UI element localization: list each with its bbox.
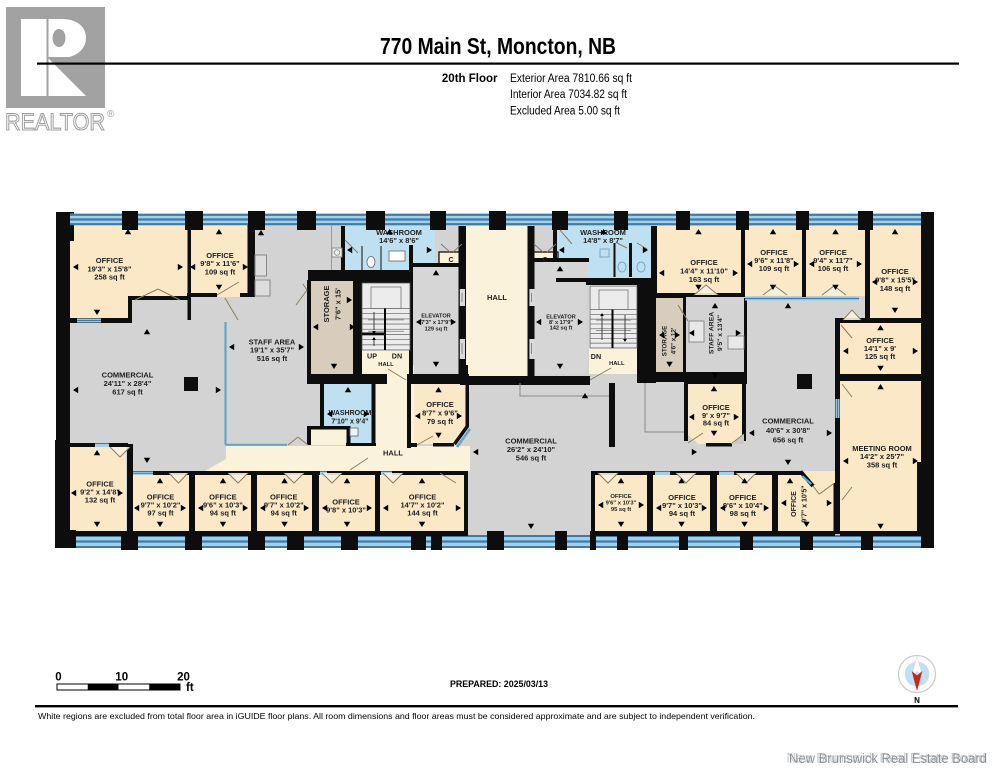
svg-text:UP: UP [367, 352, 377, 361]
svg-text:ft: ft [186, 682, 194, 694]
svg-text:94 sq ft: 94 sq ft [271, 508, 298, 517]
svg-text:®: ® [107, 109, 115, 120]
svg-text:HALL: HALL [383, 449, 403, 458]
svg-text:40'6" x 30'8": 40'6" x 30'8" [766, 426, 810, 435]
svg-text:617 sq ft: 617 sq ft [112, 387, 143, 396]
svg-text:REALTOR: REALTOR [5, 109, 105, 136]
svg-text:HALL: HALL [487, 293, 507, 302]
svg-text:STORAGE: STORAGE [322, 286, 331, 323]
svg-text:4'6" x 12': 4'6" x 12' [671, 327, 678, 354]
svg-text:109 sq ft: 109 sq ft [205, 267, 236, 276]
svg-text:OFFICE: OFFICE [610, 494, 631, 500]
svg-text:129 sq ft: 129 sq ft [425, 327, 448, 333]
svg-text:STORAGE: STORAGE [662, 326, 669, 356]
svg-text:Excluded Area 5.00 sq ft: Excluded Area 5.00 sq ft [510, 105, 621, 117]
svg-text:White regions are excluded fro: White regions are excluded from total fl… [38, 711, 755, 721]
svg-text:546 sq ft: 546 sq ft [516, 453, 547, 462]
svg-text:DN: DN [591, 352, 601, 361]
svg-text:DN: DN [392, 352, 402, 361]
svg-text:10: 10 [115, 672, 128, 684]
svg-text:14'6" x 8'6": 14'6" x 8'6" [379, 236, 419, 245]
svg-text:COMMERCIAL: COMMERCIAL [762, 417, 814, 426]
svg-text:770 Main St, Moncton, NB: 770 Main St, Moncton, NB [380, 33, 616, 59]
svg-text:Exterior Area 7810.66 sq ft: Exterior Area 7810.66 sq ft [510, 73, 633, 85]
svg-text:20th Floor: 20th Floor [442, 73, 498, 85]
svg-text:109 sq ft: 109 sq ft [759, 264, 790, 273]
svg-text:HALL: HALL [378, 362, 394, 368]
svg-text:9'6" x 10'3": 9'6" x 10'3" [606, 500, 637, 506]
svg-text:7'6" x 15': 7'6" x 15' [334, 288, 343, 320]
svg-text:84 sq ft: 84 sq ft [703, 419, 730, 428]
svg-text:7'3" x 17'9": 7'3" x 17'9" [421, 320, 451, 326]
svg-text:C: C [448, 257, 453, 264]
svg-text:ELEVATOR: ELEVATOR [421, 314, 451, 320]
svg-text:9'8" x 10'3": 9'8" x 10'3" [326, 506, 366, 515]
svg-text:Interior Area 7034.82 sq ft: Interior Area 7034.82 sq ft [510, 89, 628, 101]
svg-text:94 sq ft: 94 sq ft [669, 509, 696, 518]
svg-text:163 sq ft: 163 sq ft [689, 275, 720, 284]
svg-text:N: N [914, 696, 920, 705]
svg-text:0: 0 [55, 672, 61, 684]
svg-text:HALL: HALL [609, 361, 625, 367]
svg-text:OFFICE: OFFICE [791, 491, 798, 517]
svg-text:14'8" x 8'7": 14'8" x 8'7" [583, 236, 623, 245]
svg-text:New Brunswick Real Estate Boar: New Brunswick Real Estate Board [789, 751, 987, 766]
svg-text:9'5" x 13'4": 9'5" x 13'4" [717, 315, 724, 351]
svg-text:9'7" x 10'5": 9'7" x 10'5" [802, 485, 809, 522]
svg-text:148 sq ft: 148 sq ft [880, 284, 911, 293]
svg-text:PREPARED: 2025/03/13: PREPARED: 2025/03/13 [450, 679, 548, 689]
svg-text:STAFF AREA: STAFF AREA [709, 312, 716, 354]
svg-text:98 sq ft: 98 sq ft [730, 509, 757, 518]
svg-text:94 sq ft: 94 sq ft [210, 508, 237, 517]
svg-text:C: C [542, 257, 547, 264]
svg-text:125 sq ft: 125 sq ft [865, 352, 896, 361]
svg-text:142 sq ft: 142 sq ft [550, 326, 573, 332]
svg-text:97 sq ft: 97 sq ft [147, 508, 174, 517]
svg-text:258 sq ft: 258 sq ft [94, 272, 125, 281]
svg-text:79 sq ft: 79 sq ft [427, 417, 454, 426]
svg-text:358 sq ft: 358 sq ft [867, 460, 898, 469]
svg-text:95 sq ft: 95 sq ft [611, 507, 631, 513]
svg-text:132 sq ft: 132 sq ft [85, 495, 116, 504]
svg-text:7'10" x 9'4": 7'10" x 9'4" [331, 418, 368, 425]
svg-text:516 sq ft: 516 sq ft [257, 354, 288, 363]
svg-text:144 sq ft: 144 sq ft [407, 508, 438, 517]
svg-text:656 sq ft: 656 sq ft [773, 436, 804, 445]
svg-text:106 sq ft: 106 sq ft [818, 264, 849, 273]
